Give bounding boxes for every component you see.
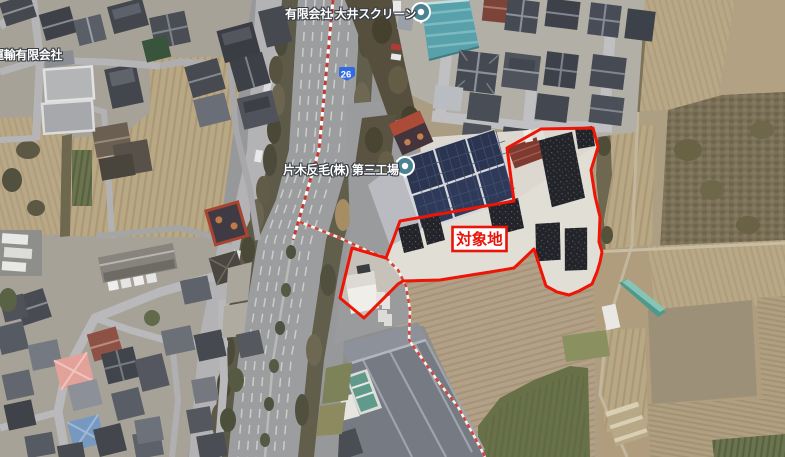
svg-text:対象地: 対象地 [455,230,503,249]
svg-text:26: 26 [341,70,352,81]
